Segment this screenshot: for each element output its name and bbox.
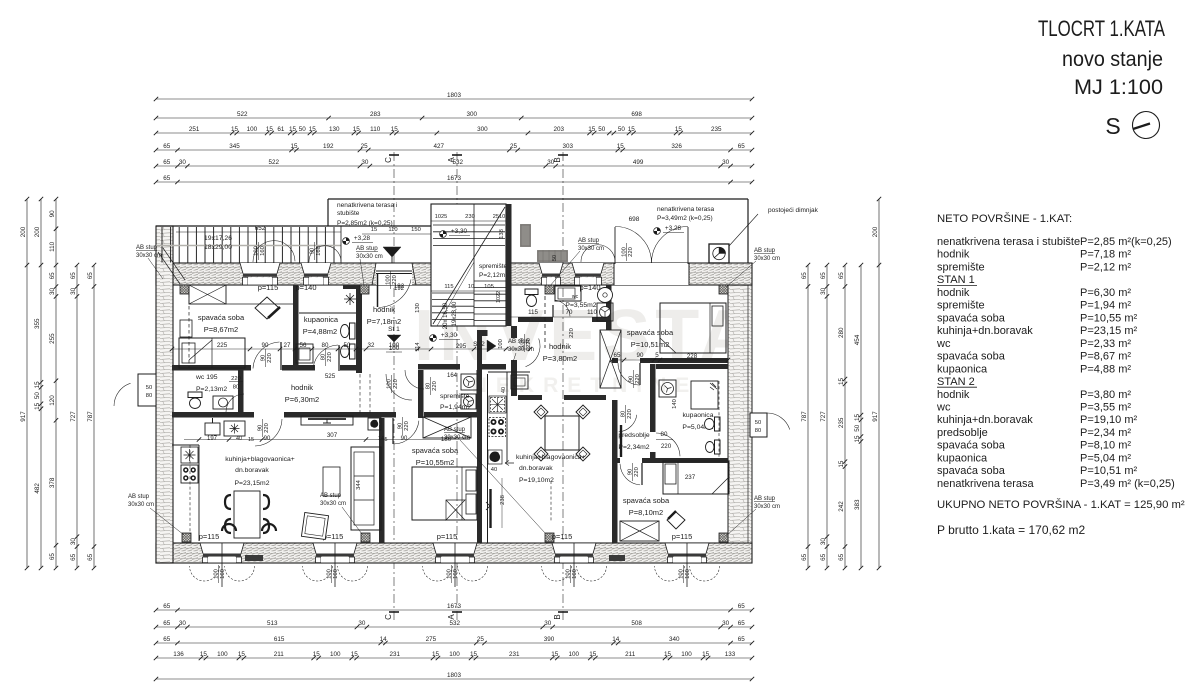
svg-text:220: 220 — [628, 247, 634, 257]
svg-text:P=3,80 m²: P=3,80 m² — [1080, 389, 1131, 401]
svg-text:15: 15 — [309, 126, 317, 133]
svg-text:130: 130 — [329, 126, 340, 133]
svg-text:p=115: p=115 — [199, 532, 220, 541]
svg-text:stubište: stubište — [337, 210, 360, 217]
svg-text:307: 307 — [327, 432, 338, 439]
svg-text:65: 65 — [820, 553, 827, 561]
svg-text:65: 65 — [820, 272, 827, 280]
svg-text:652: 652 — [255, 225, 266, 232]
svg-text:+3,30: +3,30 — [451, 228, 468, 235]
svg-text:AB stup: AB stup — [754, 248, 776, 254]
svg-text:522: 522 — [268, 159, 279, 166]
svg-text:P=19,10m2: P=19,10m2 — [519, 477, 554, 484]
svg-text:220: 220 — [327, 352, 333, 362]
svg-text:100: 100 — [449, 651, 460, 658]
svg-text:novo stanje: novo stanje — [1062, 48, 1163, 71]
svg-text:15: 15 — [34, 381, 41, 389]
svg-text:110: 110 — [370, 126, 381, 133]
svg-text:30x30 cm: 30x30 cm — [754, 504, 780, 510]
svg-text:P=1,94m2: P=1,94m2 — [440, 404, 471, 411]
svg-text:615: 615 — [274, 636, 285, 643]
svg-text:15: 15 — [589, 651, 597, 658]
svg-text:275: 275 — [426, 636, 437, 643]
svg-text:90: 90 — [262, 342, 269, 349]
svg-text:90: 90 — [401, 436, 408, 442]
svg-text:dn.boravak: dn.boravak — [235, 467, 269, 474]
svg-text:P=19,10 m²: P=19,10 m² — [1080, 414, 1138, 426]
svg-text:30: 30 — [722, 620, 730, 627]
svg-text:30: 30 — [179, 159, 187, 166]
svg-text:65: 65 — [801, 272, 808, 280]
svg-text:390: 390 — [544, 636, 555, 643]
svg-text:136: 136 — [173, 651, 184, 658]
svg-text:15: 15 — [231, 126, 239, 133]
svg-text:30: 30 — [358, 620, 366, 627]
svg-text:100: 100 — [498, 339, 504, 349]
svg-text:340: 340 — [669, 636, 680, 643]
svg-text:30x30 cm: 30x30 cm — [320, 501, 346, 507]
svg-text:B: B — [553, 157, 562, 162]
svg-text:dn.boravak: dn.boravak — [519, 465, 553, 472]
svg-text:hodnik: hodnik — [937, 389, 970, 401]
svg-text:15: 15 — [248, 437, 254, 443]
svg-text:19x28,00: 19x28,00 — [452, 301, 458, 326]
svg-text:65: 65 — [163, 159, 171, 166]
svg-text:40: 40 — [501, 387, 507, 393]
svg-text:25: 25 — [477, 636, 485, 643]
svg-text:P brutto 1.kata = 170,62 m2: P brutto 1.kata = 170,62 m2 — [937, 523, 1086, 537]
svg-text:231: 231 — [390, 651, 401, 658]
svg-text:225: 225 — [217, 342, 228, 349]
svg-text:P=8,67m2: P=8,67m2 — [204, 325, 238, 334]
svg-text:50: 50 — [34, 392, 41, 400]
svg-text:200: 200 — [872, 226, 879, 237]
svg-text:27: 27 — [284, 342, 291, 349]
svg-text:110: 110 — [49, 241, 56, 252]
svg-text:spremište: spremište — [937, 300, 985, 312]
svg-text:kuhinja+dn.boravak: kuhinja+dn.boravak — [937, 325, 1033, 337]
svg-text:454: 454 — [854, 334, 861, 345]
svg-text:5: 5 — [655, 352, 659, 359]
svg-text:50: 50 — [344, 342, 351, 349]
svg-text:S: S — [1105, 113, 1120, 139]
svg-text:65: 65 — [614, 352, 621, 359]
svg-text:30: 30 — [70, 538, 77, 546]
svg-text:p=140: p=140 — [295, 283, 316, 292]
svg-text:30: 30 — [49, 288, 56, 296]
svg-text:220: 220 — [635, 374, 641, 384]
svg-text:50: 50 — [146, 385, 152, 391]
svg-text:14: 14 — [380, 636, 388, 643]
svg-text:80: 80 — [755, 428, 761, 434]
svg-text:STAN 1: STAN 1 — [937, 274, 975, 286]
svg-text:220: 220 — [404, 421, 410, 431]
svg-text:15: 15 — [551, 651, 559, 658]
svg-text:150: 150 — [411, 227, 421, 233]
svg-text:wc: wc — [936, 402, 951, 414]
svg-text:kupaonica: kupaonica — [937, 363, 988, 375]
svg-text:203: 203 — [553, 126, 564, 133]
svg-text:140: 140 — [672, 399, 678, 409]
svg-text:326: 326 — [671, 143, 682, 150]
svg-text:344: 344 — [356, 479, 362, 489]
svg-text:predsoblje: predsoblje — [618, 432, 650, 439]
svg-text:280: 280 — [838, 327, 845, 338]
svg-text:197: 197 — [207, 436, 218, 442]
svg-text:220: 220 — [432, 381, 438, 391]
svg-text:kuhinja+dn.boravak: kuhinja+dn.boravak — [937, 414, 1033, 426]
svg-text:231: 231 — [509, 651, 520, 658]
svg-text:32: 32 — [368, 342, 375, 349]
svg-text:P=3,49 m² (k=0,25): P=3,49 m² (k=0,25) — [1080, 478, 1175, 490]
svg-text:1022: 1022 — [496, 291, 502, 303]
svg-text:100: 100 — [217, 651, 228, 658]
svg-text:220: 220 — [267, 353, 273, 363]
svg-text:14: 14 — [612, 636, 620, 643]
svg-text:220: 220 — [231, 376, 241, 382]
svg-text:508: 508 — [631, 620, 642, 627]
svg-text:kupaonica: kupaonica — [683, 412, 714, 419]
svg-text:hodnik: hodnik — [549, 342, 571, 351]
svg-text:15: 15 — [838, 460, 845, 468]
svg-text:P=10,55m2: P=10,55m2 — [416, 458, 455, 467]
svg-text:133: 133 — [725, 651, 736, 658]
svg-text:100: 100 — [389, 342, 400, 349]
svg-text:postojeći dimnjak: postojeći dimnjak — [768, 207, 819, 214]
svg-text:251: 251 — [189, 126, 200, 133]
svg-text:30x30 cm: 30x30 cm — [754, 256, 780, 262]
svg-text:65: 65 — [49, 553, 56, 561]
svg-text:P=2,34 m²: P=2,34 m² — [1080, 427, 1131, 439]
svg-text:spavaća soba: spavaća soba — [627, 328, 674, 337]
svg-text:80: 80 — [661, 431, 668, 438]
svg-text:hodnik: hodnik — [937, 249, 970, 261]
svg-text:C: C — [384, 614, 393, 620]
svg-text:p=140: p=140 — [579, 283, 600, 292]
svg-text:14: 14 — [378, 436, 384, 442]
svg-text:A: A — [447, 614, 456, 620]
svg-text:65: 65 — [838, 272, 845, 280]
svg-text:spavaća soba: spavaća soba — [198, 313, 245, 322]
svg-text:C: C — [384, 157, 393, 163]
svg-text:15: 15 — [628, 126, 636, 133]
svg-text:383: 383 — [854, 499, 861, 510]
svg-text:120: 120 — [49, 395, 56, 406]
svg-text:30x30 cm: 30x30 cm — [444, 435, 470, 441]
svg-text:80: 80 — [233, 385, 239, 391]
svg-text:spavaća soba: spavaća soba — [412, 446, 459, 455]
svg-text:220: 220 — [569, 328, 575, 338]
svg-text:P=8,10m2: P=8,10m2 — [629, 508, 663, 517]
svg-text:698: 698 — [629, 216, 640, 223]
svg-text:220: 220 — [634, 467, 640, 477]
svg-text:110: 110 — [388, 227, 397, 233]
svg-text:10: 10 — [468, 284, 474, 290]
svg-text:P=8,10 m²: P=8,10 m² — [1080, 440, 1131, 452]
svg-text:15: 15 — [290, 143, 298, 150]
svg-text:115: 115 — [528, 309, 538, 316]
svg-text:P=1,94 m²: P=1,94 m² — [1080, 300, 1131, 312]
svg-text:15: 15 — [838, 378, 845, 386]
svg-text:p=115: p=115 — [672, 532, 693, 541]
svg-text:15: 15 — [200, 651, 208, 658]
svg-text:1803: 1803 — [447, 672, 462, 679]
svg-text:AB stup: AB stup — [320, 493, 342, 499]
svg-text:130: 130 — [415, 303, 421, 313]
svg-text:15: 15 — [854, 414, 861, 422]
svg-text:25: 25 — [361, 143, 369, 150]
svg-text:345: 345 — [229, 143, 240, 150]
svg-text:P=3,80m2: P=3,80m2 — [543, 354, 577, 363]
svg-text:nenatkrivena terasa i stubište: nenatkrivena terasa i stubište — [937, 236, 1080, 248]
svg-text:65: 65 — [838, 553, 845, 561]
svg-text:P=5,04 m²: P=5,04 m² — [1080, 452, 1131, 464]
svg-text:65: 65 — [87, 272, 94, 280]
svg-text:P=23,15m2: P=23,15m2 — [235, 480, 270, 487]
svg-text:B: B — [553, 614, 562, 619]
svg-text:138: 138 — [499, 229, 505, 239]
svg-text:kuhinja+blagovaonica+: kuhinja+blagovaonica+ — [225, 456, 295, 463]
svg-text:wc: wc — [936, 338, 951, 350]
svg-text:15: 15 — [470, 651, 478, 658]
svg-text:220: 220 — [393, 379, 399, 389]
svg-text:P=2,34m2: P=2,34m2 — [618, 444, 649, 451]
svg-text:192: 192 — [394, 283, 405, 290]
svg-text:160: 160 — [260, 246, 266, 256]
svg-text:P=2,85m2 (k=0,25): P=2,85m2 (k=0,25) — [337, 220, 393, 227]
svg-text:P=2,33 m²: P=2,33 m² — [1080, 338, 1131, 350]
svg-text:65: 65 — [738, 620, 746, 627]
svg-text:65: 65 — [738, 603, 746, 610]
svg-text:787: 787 — [801, 411, 808, 422]
svg-text:spavaća soba: spavaća soba — [937, 351, 1006, 363]
svg-text:237: 237 — [685, 474, 696, 481]
svg-text:499: 499 — [633, 159, 644, 166]
svg-text:wc: wc — [572, 294, 579, 300]
svg-text:255: 255 — [49, 333, 56, 344]
svg-text:40: 40 — [491, 467, 497, 473]
svg-text:P=10,51 m²: P=10,51 m² — [1080, 465, 1138, 477]
svg-text:P=7,18 m²: P=7,18 m² — [1080, 249, 1131, 261]
svg-text:65: 65 — [801, 553, 808, 561]
svg-text:15: 15 — [588, 126, 596, 133]
svg-text:160: 160 — [453, 569, 459, 579]
svg-text:110: 110 — [587, 309, 597, 316]
svg-text:UKUPNO NETO POVRŠINA - 1.KAT =: UKUPNO NETO POVRŠINA - 1.KAT = 125,90 m² — [937, 498, 1185, 511]
svg-text:220: 220 — [627, 409, 633, 419]
svg-text:30: 30 — [361, 159, 369, 166]
svg-text:kupaonica: kupaonica — [937, 452, 988, 464]
svg-text:St 1: St 1 — [388, 326, 400, 333]
svg-text:30: 30 — [179, 620, 187, 627]
svg-text:15: 15 — [432, 651, 440, 658]
svg-text:164: 164 — [447, 373, 458, 379]
svg-text:100: 100 — [569, 651, 580, 658]
svg-text:spavaća soba: spavaća soba — [623, 496, 670, 505]
svg-text:105: 105 — [484, 284, 494, 290]
svg-text:513: 513 — [267, 620, 278, 627]
svg-text:P=7,18m2: P=7,18m2 — [367, 317, 401, 326]
svg-text:65: 65 — [70, 553, 77, 561]
svg-text:100: 100 — [330, 651, 341, 658]
svg-text:15: 15 — [371, 227, 377, 233]
svg-text:200: 200 — [20, 226, 27, 237]
svg-text:30: 30 — [544, 620, 552, 627]
svg-text:AB stup: AB stup — [508, 339, 530, 345]
svg-text:100: 100 — [247, 126, 258, 133]
svg-text:AB stup: AB stup — [356, 245, 378, 252]
svg-text:hodnik: hodnik — [937, 287, 970, 299]
svg-text:1673: 1673 — [447, 175, 462, 182]
svg-text:65: 65 — [163, 636, 171, 643]
svg-text:283: 283 — [370, 111, 381, 118]
svg-text:kupaonica: kupaonica — [304, 315, 339, 324]
svg-text:300: 300 — [477, 126, 488, 133]
svg-text:spavaća soba: spavaća soba — [937, 465, 1006, 477]
svg-text:427: 427 — [434, 143, 445, 150]
svg-text:65: 65 — [49, 272, 56, 280]
svg-text:P=8,67 m²: P=8,67 m² — [1080, 351, 1131, 363]
svg-text:30x30 cm: 30x30 cm — [578, 246, 604, 252]
svg-text:238: 238 — [500, 495, 506, 505]
svg-text:727: 727 — [820, 411, 827, 422]
svg-text:wc 195: wc 195 — [195, 374, 218, 381]
svg-text:P=3,55 m²: P=3,55 m² — [1080, 402, 1131, 414]
svg-text:1803: 1803 — [447, 92, 462, 99]
svg-text:MJ 1:100: MJ 1:100 — [1074, 76, 1163, 99]
svg-text:100: 100 — [681, 651, 692, 658]
svg-text:p=115: p=115 — [552, 532, 573, 541]
svg-text:AB stup: AB stup — [136, 245, 158, 251]
svg-text:303: 303 — [562, 143, 573, 150]
svg-text:30: 30 — [722, 159, 730, 166]
svg-text:228: 228 — [687, 353, 698, 360]
svg-text:30x30 cm: 30x30 cm — [356, 253, 383, 260]
svg-text:5: 5 — [385, 437, 388, 443]
svg-text:114: 114 — [415, 342, 421, 352]
svg-text:50: 50 — [755, 420, 761, 426]
svg-text:15: 15 — [34, 402, 41, 410]
svg-text:698: 698 — [631, 111, 642, 118]
svg-text:+3,28: +3,28 — [665, 225, 682, 232]
svg-text:65: 65 — [738, 143, 746, 150]
svg-text:19x17,26: 19x17,26 — [204, 235, 232, 242]
svg-text:65: 65 — [163, 603, 171, 610]
svg-text:18x29,00: 18x29,00 — [204, 244, 232, 251]
svg-text:15: 15 — [664, 651, 672, 658]
svg-text:235: 235 — [711, 126, 722, 133]
svg-text:211: 211 — [625, 651, 636, 658]
svg-text:115: 115 — [444, 284, 453, 290]
svg-text:15: 15 — [313, 651, 321, 658]
svg-text:30x30 cm: 30x30 cm — [128, 502, 154, 508]
svg-text:P=6,30m2: P=6,30m2 — [285, 395, 319, 404]
svg-text:378: 378 — [49, 477, 56, 488]
svg-text:30x30 cm: 30x30 cm — [136, 253, 162, 259]
svg-text:15: 15 — [702, 651, 710, 658]
svg-text:15: 15 — [266, 126, 274, 133]
svg-text:TLOCRT 1.KATA: TLOCRT 1.KATA — [1038, 16, 1165, 41]
svg-text:15: 15 — [353, 126, 361, 133]
svg-text:P=3,55m2: P=3,55m2 — [565, 302, 596, 309]
svg-text:A: A — [447, 157, 456, 163]
svg-text:predsoblje: predsoblje — [937, 427, 988, 439]
svg-text:P=2,85 m²(k=0,25): P=2,85 m²(k=0,25) — [1080, 236, 1172, 248]
svg-text:65: 65 — [163, 175, 171, 182]
svg-text:+3,28: +3,28 — [354, 235, 371, 242]
svg-text:65: 65 — [163, 143, 171, 150]
svg-text:+3,30: +3,30 — [441, 332, 458, 339]
svg-text:spavaća soba: spavaća soba — [937, 440, 1006, 452]
svg-text:AB stup: AB stup — [754, 496, 776, 502]
svg-text:AB stup: AB stup — [128, 494, 150, 500]
svg-text:80: 80 — [322, 342, 329, 349]
svg-text:nenatkrivena terasa: nenatkrivena terasa — [657, 206, 714, 213]
svg-text:1025: 1025 — [435, 214, 447, 220]
svg-text:AB stup: AB stup — [444, 427, 466, 433]
svg-text:300: 300 — [466, 111, 477, 118]
svg-text:192: 192 — [323, 143, 334, 150]
svg-text:P=2,12m2: P=2,12m2 — [479, 272, 509, 279]
svg-text:AB stup: AB stup — [578, 238, 600, 244]
svg-text:90: 90 — [49, 210, 56, 218]
svg-text:50: 50 — [299, 126, 307, 133]
svg-text:P=2,12 m²: P=2,12 m² — [1080, 262, 1131, 274]
svg-text:65: 65 — [163, 620, 171, 627]
svg-text:P=3,49m2 (k=0,25): P=3,49m2 (k=0,25) — [657, 215, 713, 222]
svg-text:P=10,55 m²: P=10,55 m² — [1080, 312, 1138, 324]
svg-text:15: 15 — [675, 126, 683, 133]
svg-text:p=115: p=115 — [258, 283, 279, 292]
svg-text:65: 65 — [87, 553, 94, 561]
svg-text:30: 30 — [820, 287, 827, 295]
svg-text:917: 917 — [872, 411, 879, 422]
svg-text:spremište: spremište — [937, 262, 985, 274]
svg-text:61: 61 — [277, 126, 285, 133]
svg-text:482: 482 — [34, 483, 41, 494]
svg-text:hodnik: hodnik — [373, 305, 395, 314]
svg-text:727: 727 — [70, 411, 77, 422]
svg-text:15: 15 — [391, 126, 399, 133]
svg-text:NETO POVRŠINE - 1.KAT:: NETO POVRŠINE - 1.KAT: — [937, 212, 1072, 225]
svg-text:220: 220 — [264, 423, 270, 433]
svg-text:160: 160 — [333, 569, 339, 579]
svg-text:spavaća soba: spavaća soba — [937, 312, 1006, 324]
svg-text:160: 160 — [685, 569, 691, 579]
svg-text:787: 787 — [87, 411, 94, 422]
svg-text:235: 235 — [838, 417, 845, 428]
svg-text:230: 230 — [465, 214, 475, 220]
svg-text:30x30 cm: 30x30 cm — [508, 347, 534, 353]
svg-text:kuhinja+blagovaonica+: kuhinja+blagovaonica+ — [516, 454, 586, 461]
svg-text:1673: 1673 — [447, 603, 462, 610]
svg-text:355: 355 — [34, 318, 41, 329]
svg-text:160: 160 — [316, 246, 322, 256]
svg-text:20x 16,50: 20x 16,50 — [443, 302, 449, 329]
svg-text:65: 65 — [738, 636, 746, 643]
svg-text:15: 15 — [351, 651, 359, 658]
svg-text:15: 15 — [289, 126, 297, 133]
svg-text:65: 65 — [70, 272, 77, 280]
svg-text:525: 525 — [325, 373, 336, 380]
svg-text:STAN 2: STAN 2 — [937, 376, 975, 388]
svg-text:242: 242 — [838, 501, 845, 512]
svg-text:30: 30 — [70, 287, 77, 295]
svg-text:50: 50 — [618, 126, 626, 133]
svg-text:nenatkrivena terasa i: nenatkrivena terasa i — [337, 202, 397, 209]
svg-text:25: 25 — [510, 143, 518, 150]
svg-text:211: 211 — [274, 651, 285, 658]
